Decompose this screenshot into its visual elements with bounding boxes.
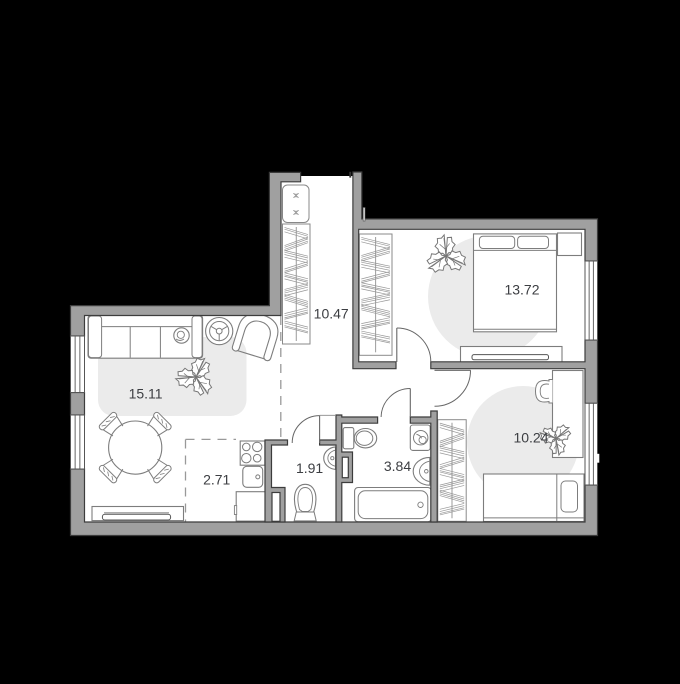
svg-text:15.11: 15.11 [129, 386, 163, 402]
svg-text:1.91: 1.91 [296, 460, 323, 476]
svg-text:10.47: 10.47 [314, 306, 349, 322]
svg-text:10.24: 10.24 [513, 430, 548, 446]
svg-text:3.84: 3.84 [384, 458, 411, 474]
svg-text:2.71: 2.71 [203, 471, 230, 487]
svg-text:13.72: 13.72 [504, 282, 539, 298]
